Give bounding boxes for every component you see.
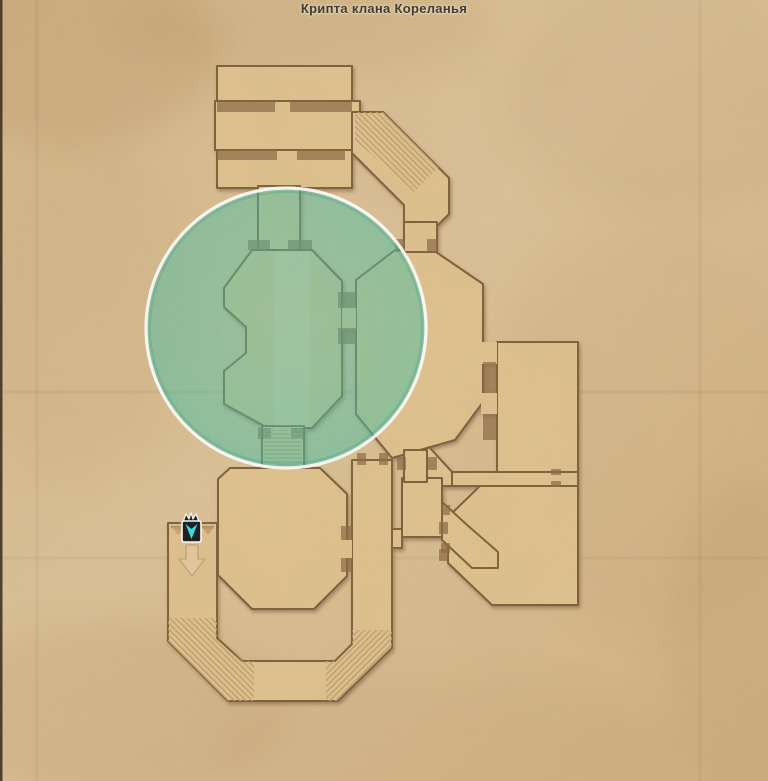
- parchment-grain-texture: [0, 0, 768, 781]
- map-viewport[interactable]: Крипта клана Кореланья: [0, 0, 768, 781]
- map-canvas: [0, 0, 768, 781]
